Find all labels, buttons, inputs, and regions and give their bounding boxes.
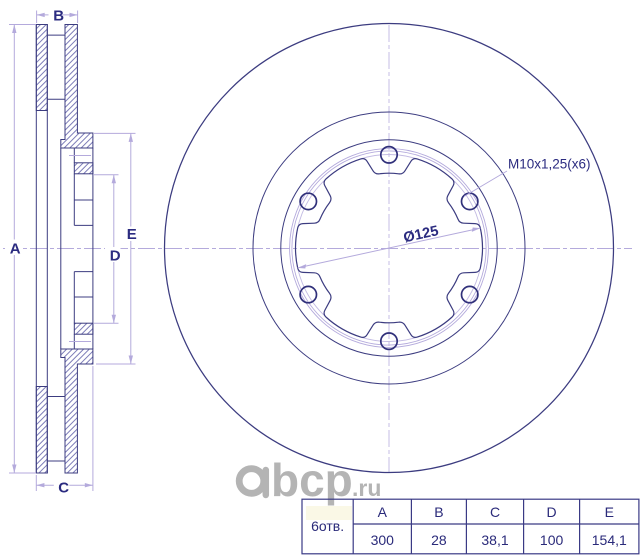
svg-text:.ru: .ru (352, 475, 381, 501)
svg-text:E: E (605, 504, 614, 520)
svg-text:28: 28 (431, 532, 447, 548)
svg-text:6отв.: 6отв. (311, 518, 344, 534)
svg-text:E: E (127, 226, 137, 243)
svg-text:38,1: 38,1 (481, 532, 508, 548)
svg-text:C: C (58, 480, 69, 497)
svg-text:M10x1,25(x6): M10x1,25(x6) (508, 157, 591, 172)
svg-text:bcp: bcp (271, 454, 353, 506)
svg-text:D: D (547, 504, 557, 520)
svg-text:A: A (10, 241, 21, 258)
svg-text:300: 300 (371, 532, 395, 548)
svg-text:B: B (53, 7, 64, 24)
svg-text:A: A (378, 504, 388, 520)
svg-text:B: B (434, 504, 443, 520)
svg-text:C: C (490, 504, 500, 520)
svg-text:100: 100 (540, 532, 564, 548)
svg-text:154,1: 154,1 (592, 532, 627, 548)
svg-text:D: D (110, 247, 121, 264)
